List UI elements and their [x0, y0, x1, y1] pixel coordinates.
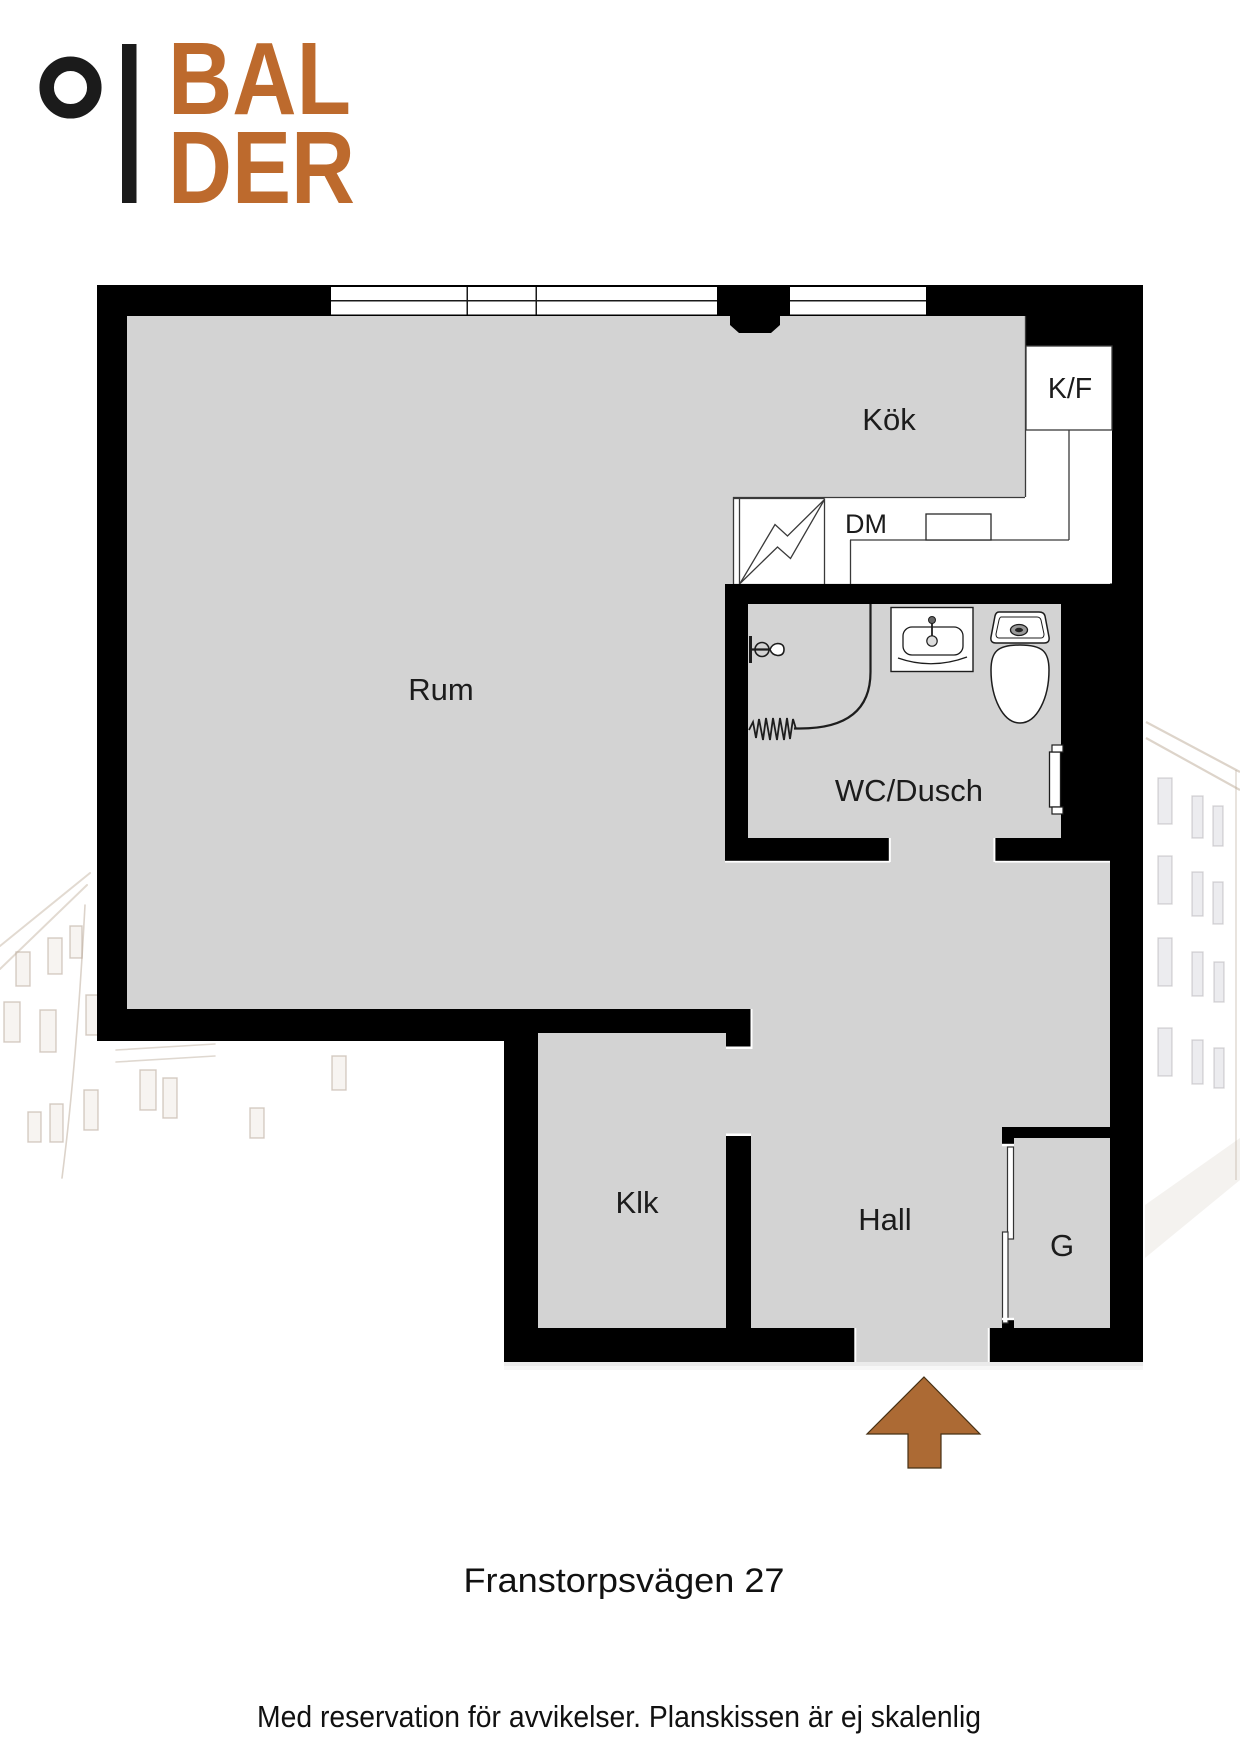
svg-text:Klk: Klk	[615, 1185, 659, 1220]
svg-text:Rum: Rum	[408, 672, 473, 707]
svg-text:Hall: Hall	[858, 1202, 911, 1237]
svg-text:Med reservation för avvikelser: Med reservation för avvikelser. Planskis…	[257, 1699, 981, 1734]
svg-text:Franstorpsvägen 27: Franstorpsvägen 27	[464, 1562, 785, 1600]
svg-text:WC/Dusch: WC/Dusch	[835, 773, 983, 808]
svg-text:DER: DER	[168, 110, 355, 225]
svg-text:DM: DM	[845, 509, 887, 539]
svg-text:Kök: Kök	[862, 402, 916, 437]
svg-text:K/F: K/F	[1048, 373, 1092, 405]
svg-text:G: G	[1050, 1228, 1074, 1263]
